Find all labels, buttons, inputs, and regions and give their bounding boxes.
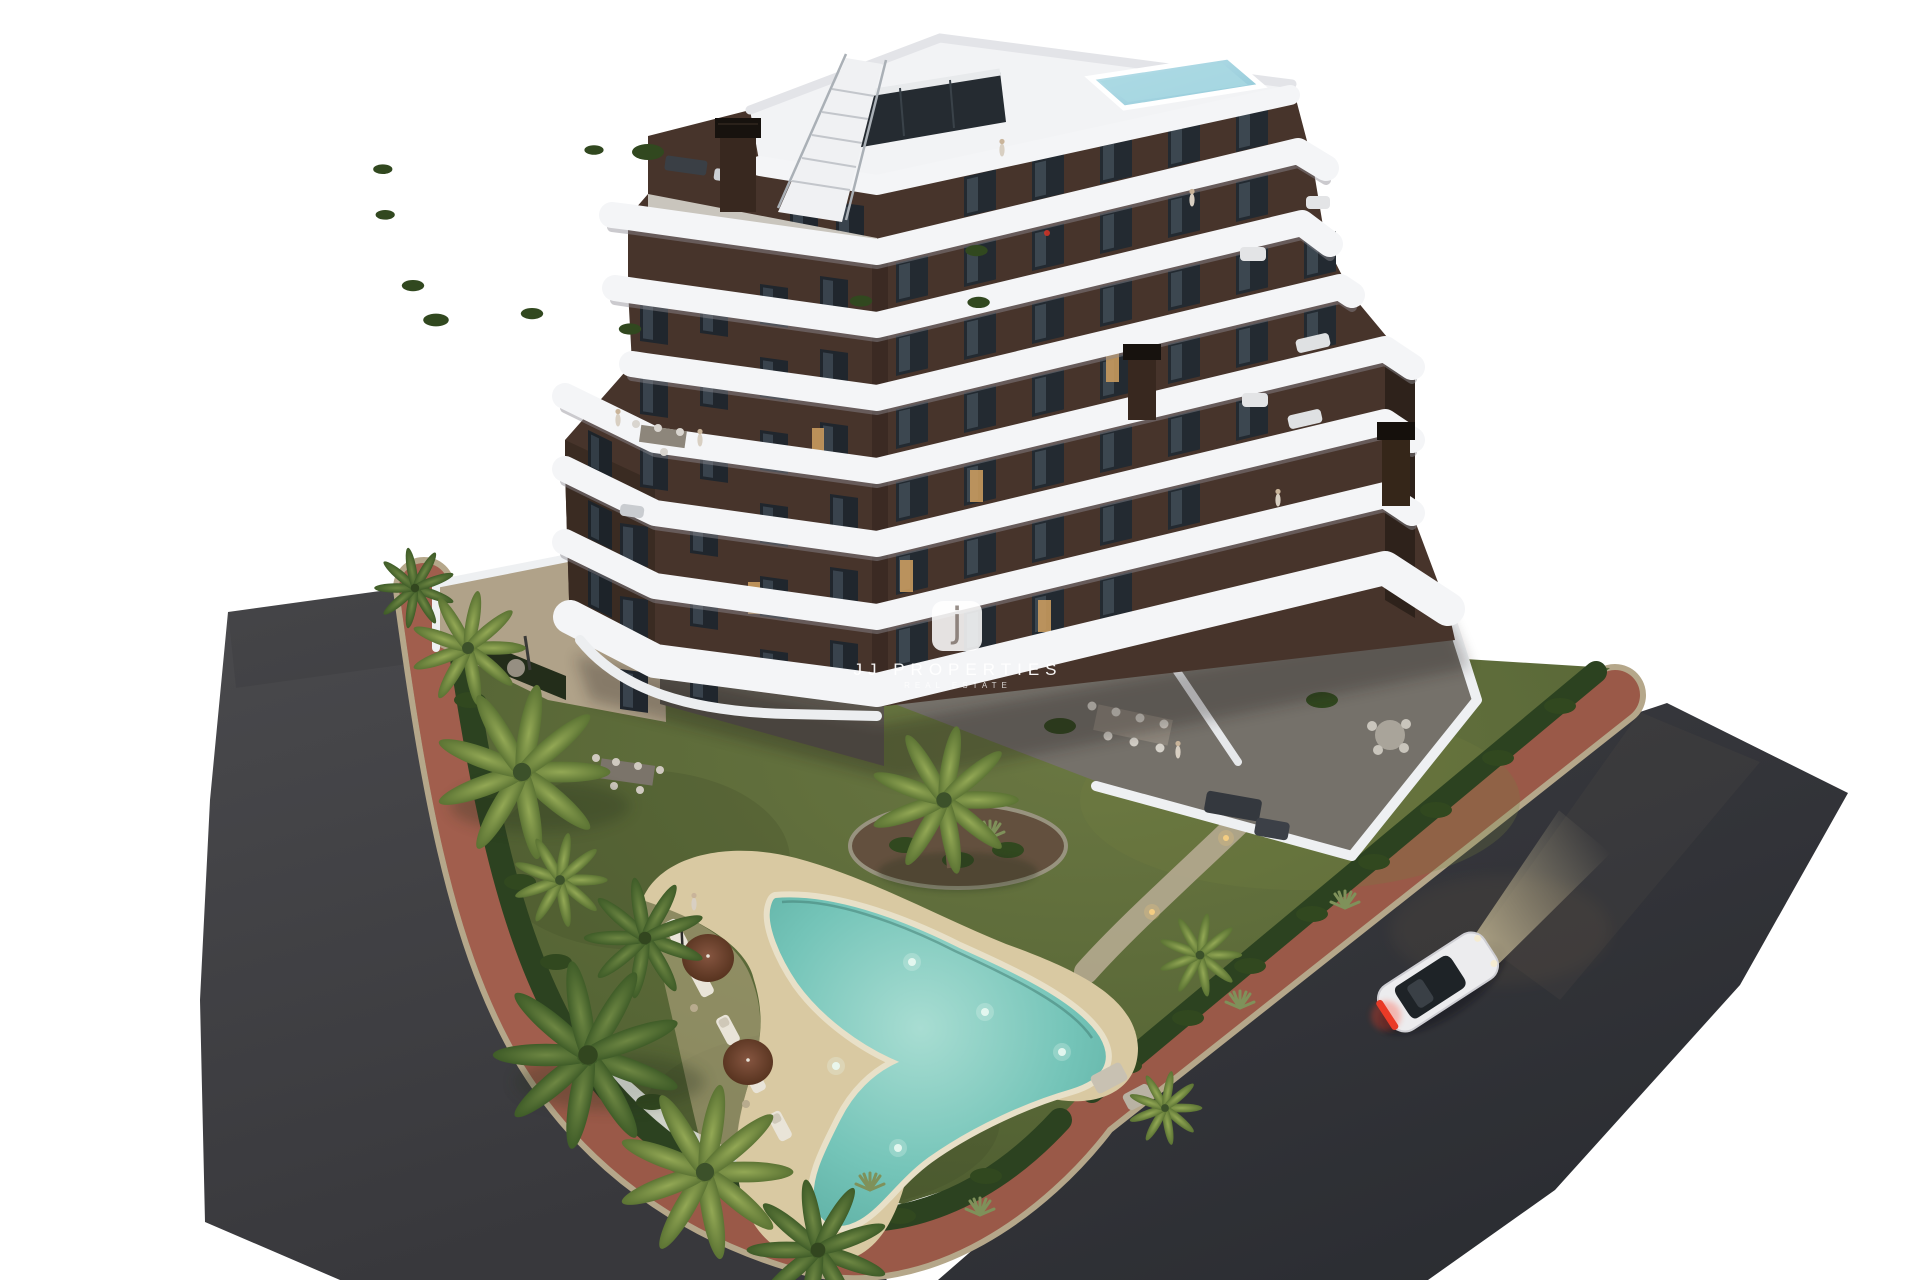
render-canvas bbox=[0, 0, 1920, 1280]
person-by-pool bbox=[691, 893, 696, 911]
architectural-render: j JJ PROPERTIES REAL ESTATE bbox=[0, 0, 1920, 1280]
facade-windows-west bbox=[588, 430, 612, 618]
chimney-left bbox=[715, 118, 761, 212]
chimney-right bbox=[1377, 422, 1415, 506]
chimney-mid bbox=[1123, 344, 1161, 420]
